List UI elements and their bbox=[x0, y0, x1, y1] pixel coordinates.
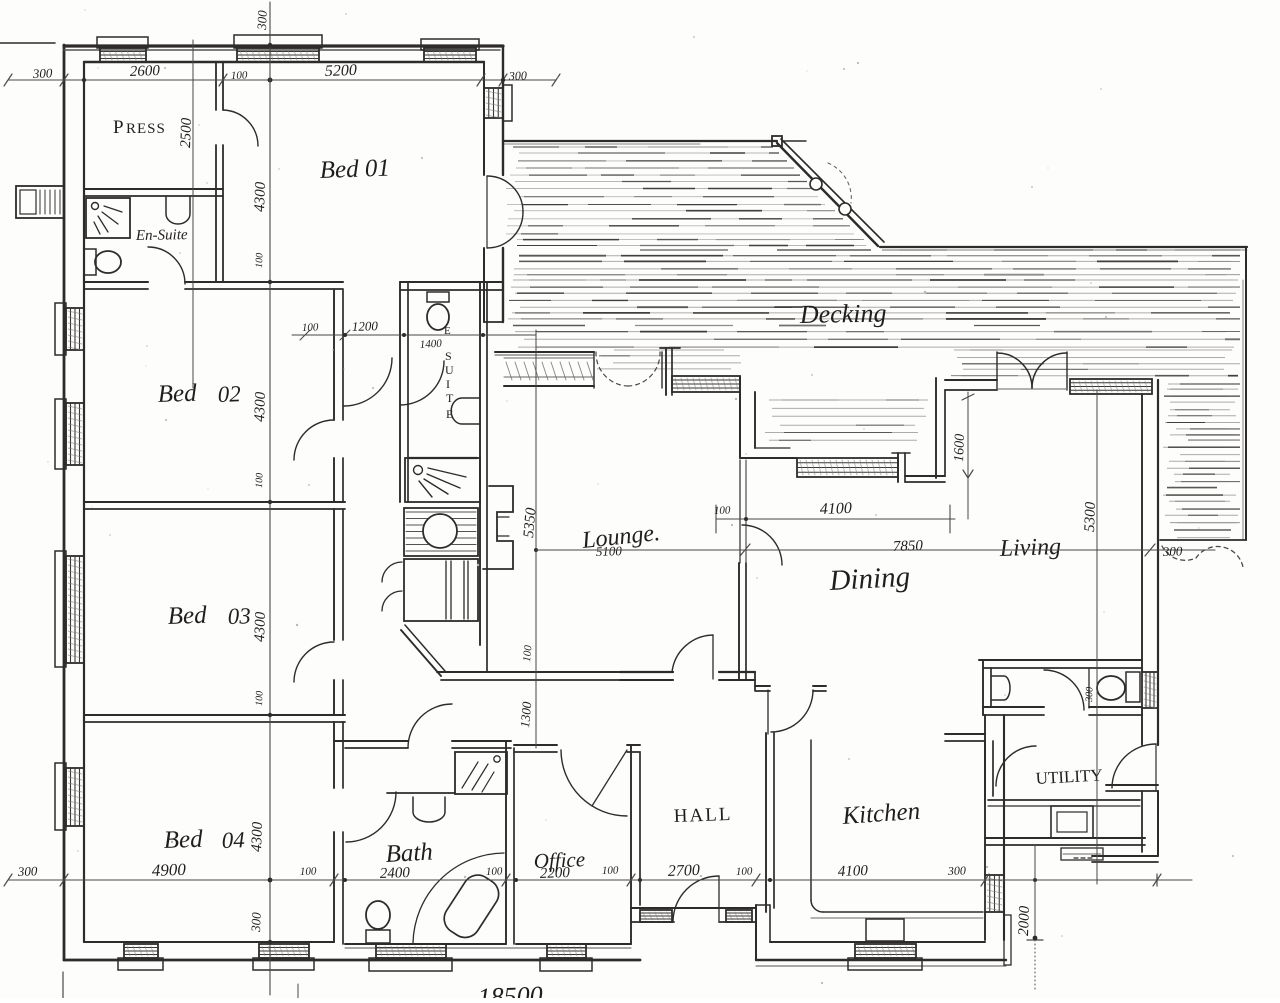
svg-text:S: S bbox=[445, 349, 452, 363]
svg-text:4300: 4300 bbox=[252, 391, 269, 422]
svg-text:100: 100 bbox=[302, 321, 319, 334]
svg-text:300: 300 bbox=[508, 68, 527, 83]
svg-text:P: P bbox=[113, 117, 124, 138]
svg-text:1400: 1400 bbox=[419, 337, 442, 351]
svg-text:100: 100 bbox=[254, 473, 266, 488]
svg-text:2600: 2600 bbox=[130, 63, 161, 80]
svg-text:Dining: Dining bbox=[828, 561, 911, 597]
svg-text:Bath: Bath bbox=[385, 839, 434, 868]
svg-text:2200: 2200 bbox=[540, 865, 571, 882]
svg-text:2500: 2500 bbox=[178, 117, 195, 148]
svg-text:300: 300 bbox=[947, 863, 966, 878]
svg-text:Living: Living bbox=[998, 534, 1061, 562]
svg-text:HALL: HALL bbox=[673, 804, 732, 827]
svg-text:100: 100 bbox=[486, 865, 503, 878]
svg-text:300: 300 bbox=[1084, 687, 1096, 703]
svg-text:Bed: Bed bbox=[157, 380, 197, 408]
svg-text:T: T bbox=[446, 391, 454, 405]
svg-text:300: 300 bbox=[32, 65, 54, 81]
svg-text:03: 03 bbox=[227, 603, 251, 629]
svg-text:02: 02 bbox=[217, 381, 241, 407]
svg-text:Decking: Decking bbox=[799, 298, 887, 329]
svg-text:100: 100 bbox=[254, 691, 266, 706]
svg-text:100: 100 bbox=[254, 253, 266, 268]
svg-text:7850: 7850 bbox=[893, 538, 924, 555]
svg-text:5350: 5350 bbox=[521, 507, 540, 539]
svg-text:Bed 01: Bed 01 bbox=[319, 155, 390, 184]
svg-text:2400: 2400 bbox=[380, 865, 411, 882]
svg-text:4300: 4300 bbox=[252, 181, 269, 212]
svg-text:18500: 18500 bbox=[477, 981, 543, 998]
svg-text:4100: 4100 bbox=[820, 500, 853, 518]
svg-text:4100: 4100 bbox=[838, 863, 869, 880]
svg-text:4300: 4300 bbox=[249, 821, 266, 852]
svg-text:100: 100 bbox=[714, 504, 731, 517]
svg-text:U: U bbox=[445, 363, 454, 377]
svg-text:UTILITY: UTILITY bbox=[1035, 766, 1103, 788]
svg-text:En-Suite: En-Suite bbox=[135, 227, 188, 244]
svg-text:4900: 4900 bbox=[151, 860, 186, 880]
svg-text:300: 300 bbox=[17, 863, 39, 879]
svg-text:5100: 5100 bbox=[596, 543, 623, 559]
svg-text:100: 100 bbox=[231, 69, 248, 82]
svg-text:4300: 4300 bbox=[252, 611, 269, 642]
svg-text:100: 100 bbox=[736, 865, 753, 878]
svg-text:1600: 1600 bbox=[952, 434, 968, 463]
svg-text:1300: 1300 bbox=[517, 701, 534, 729]
svg-text:300: 300 bbox=[1162, 543, 1184, 559]
svg-text:300: 300 bbox=[248, 912, 264, 934]
svg-text:300: 300 bbox=[254, 10, 270, 32]
svg-text:Bed: Bed bbox=[167, 602, 207, 630]
svg-text:1200: 1200 bbox=[352, 318, 379, 334]
svg-text:2700: 2700 bbox=[668, 862, 701, 880]
svg-text:I: I bbox=[446, 377, 450, 391]
svg-text:5300: 5300 bbox=[1082, 501, 1099, 532]
svg-text:2000: 2000 bbox=[1016, 905, 1033, 936]
svg-text:RESS: RESS bbox=[126, 121, 166, 137]
svg-text:5200: 5200 bbox=[325, 62, 358, 80]
svg-text:E: E bbox=[446, 407, 453, 421]
svg-text:Bed: Bed bbox=[163, 826, 203, 854]
svg-text:100: 100 bbox=[521, 644, 534, 662]
svg-text:100: 100 bbox=[602, 864, 619, 877]
svg-text:Kitchen: Kitchen bbox=[841, 798, 921, 830]
svg-text:04: 04 bbox=[221, 827, 245, 853]
svg-text:100: 100 bbox=[300, 865, 317, 878]
